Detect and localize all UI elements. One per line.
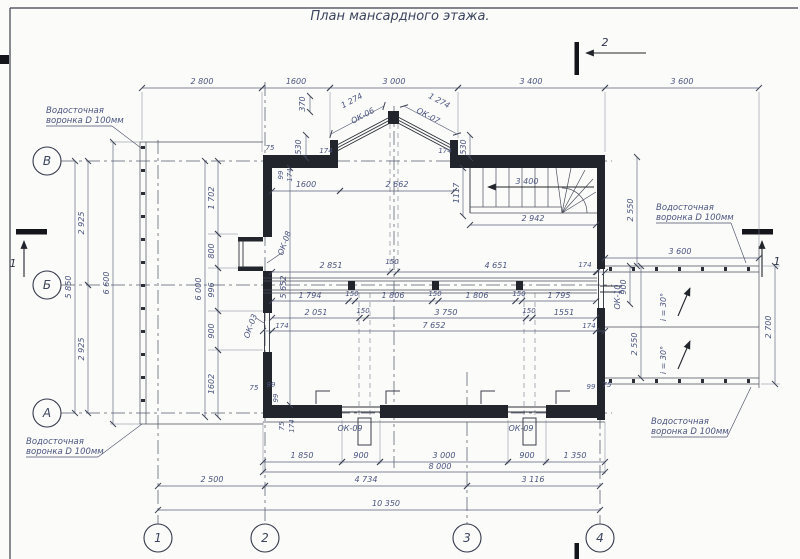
right-roof (605, 246, 759, 388)
col-bubble-1: 1 (154, 531, 162, 545)
dim-1602: 1602 (207, 374, 216, 394)
dim-99-bl-a: 99 (267, 381, 276, 389)
dim-174-b4r: 174 (582, 322, 595, 330)
window-label-ok06: ОК-06 (350, 106, 376, 126)
dim-800: 800 (207, 243, 216, 258)
drawing-sheet: План мансардного этажа. 2 1 1 (0, 0, 800, 559)
slope-label-upper: i = 30° (659, 293, 668, 321)
dim-3000-bot: 3 000 (433, 451, 456, 460)
row-bubble-b: Б (43, 278, 51, 292)
col-bubble-3: 3 (463, 531, 471, 545)
building-walls (263, 111, 605, 420)
col-bubble-2: 2 (261, 531, 269, 545)
dim-530-left: 530 (294, 139, 303, 154)
dim-150-b: 150 (345, 290, 359, 298)
dim-top-3: 3 400 (520, 77, 543, 86)
dim-370: 370 (298, 96, 307, 111)
dim-4734: 4 734 (355, 475, 378, 484)
slope-label-lower: i = 30° (659, 346, 668, 374)
post (348, 281, 355, 290)
funnel-text-1: Водосточная (656, 203, 714, 213)
dim-2700: 2 700 (764, 316, 773, 339)
dim-2051: 2 051 (305, 308, 328, 317)
dim-75-bl: 75 (250, 384, 259, 392)
dim-3400: 3 400 (516, 177, 539, 186)
hidden-lines (359, 124, 535, 418)
dim-2925-a: 2 925 (77, 212, 86, 235)
dim-3750: 3 750 (435, 308, 458, 317)
funnel-text-1: Водосточная (651, 417, 709, 427)
slope-arrow-lower (678, 341, 690, 369)
floor-plan-svg: План мансардного этажа. 2 1 1 (0, 0, 800, 559)
dim-2500: 2 500 (201, 475, 224, 484)
dim-3116: 3 116 (522, 475, 545, 484)
dim-900-left: 900 (207, 323, 216, 338)
dim-2851: 2 851 (320, 261, 343, 270)
dim-150-e: 150 (356, 307, 370, 315)
section-2-label: 2 (602, 36, 609, 49)
slope-labels: i = 30° i = 30° (659, 293, 668, 374)
dim-top-2: 3 000 (383, 77, 406, 86)
section-mark-2-bottom (575, 543, 580, 559)
dimension-lines (72, 85, 778, 513)
dim-1795: 1 795 (548, 291, 571, 300)
funnel-text-2: воронка D 100мм (46, 116, 124, 126)
dim-900-bot-b: 900 (519, 451, 534, 460)
dim-99-tl: 99 (277, 170, 285, 179)
window-label-ok09-left: ОК-09 (337, 424, 362, 433)
fold-mark (0, 55, 9, 64)
section-1-label: 1 (10, 257, 17, 270)
dim-2550-top: 2 550 (626, 199, 635, 222)
dim-900-bot-a: 900 (353, 451, 368, 460)
window-label-ok03: ОК-03 (242, 313, 259, 340)
dim-1702: 1 702 (207, 187, 216, 210)
section-mark-1-left: 1 (10, 229, 48, 277)
window-label-ok07: ОК-07 (415, 106, 442, 126)
dim-150-a: 150 (385, 258, 399, 266)
funnel-text-2: воронка D 100мм (26, 447, 104, 457)
dim-2662: 2 662 (386, 180, 409, 189)
funnel-text-2: воронка D 100мм (656, 213, 734, 223)
dim-174-left: 174 (319, 147, 332, 155)
dim-99-br: 99 (587, 383, 596, 391)
dim-150-c: 150 (428, 290, 442, 298)
grid-bubbles: В Б А 1 2 3 4 (33, 147, 614, 552)
dim-1600-inner: 1600 (296, 180, 316, 189)
bay-window-ok08 (238, 237, 263, 271)
dim-150-d: 150 (512, 290, 526, 298)
funnel-text-2: воронка D 100мм (651, 427, 729, 437)
dim-4651: 4 651 (485, 261, 508, 270)
sheet-frame (0, 8, 798, 559)
window-label-ok08: ОК-08 (276, 230, 293, 257)
dim-2942: 2 942 (522, 214, 545, 223)
post (432, 281, 439, 290)
drawing-title: План мансардного этажа. (310, 9, 489, 24)
dim-2925-b: 2 925 (77, 338, 86, 361)
dim-174-band1: 174 (578, 261, 591, 269)
dim-174-tl: 174 (286, 168, 294, 181)
dim-1794: 1 794 (299, 291, 322, 300)
dim-2550-bottom: 2 550 (630, 333, 639, 356)
dim-996: 996 (207, 282, 216, 297)
dim-top-0: 2 800 (191, 77, 214, 86)
funnel-callout-bottom-left: Водосточная воронка D 100мм (26, 424, 142, 457)
dim-1551: 1551 (554, 308, 574, 317)
window-label-ok09-right: ОК-09 (508, 424, 533, 433)
dim-1350: 1 350 (564, 451, 587, 460)
dim-75-tl: 75 (266, 144, 275, 152)
row-bubble-v: В (43, 154, 51, 168)
dim-150-f: 150 (522, 307, 536, 315)
funnel-text-1: Водосточная (46, 106, 104, 116)
dim-1117: 1117 (452, 182, 461, 203)
dim-6600: 6 600 (102, 272, 111, 295)
col-bubble-4: 4 (596, 531, 604, 545)
dim-1806-a: 1 806 (382, 291, 405, 300)
dim-530-right: 530 (459, 139, 468, 154)
dim-1274-left: 1 274 (340, 91, 364, 110)
funnel-callout-bottom-right: Водосточная воронка D 100мм (651, 387, 751, 437)
dim-174-b4l: 174 (275, 322, 288, 330)
dim-8000: 8 000 (429, 462, 452, 471)
funnel-callout-top-left: Водосточная воронка D 100мм (46, 106, 141, 148)
dim-top-4: 3 600 (671, 77, 694, 86)
dim-6000: 6 000 (194, 278, 203, 301)
dim-1806-b: 1 806 (466, 291, 489, 300)
dim-top-1: 1600 (286, 77, 306, 86)
window-labels: ОК-08 ОК-03 ОК-10 ОК-09 ОК-09 (242, 230, 622, 433)
dim-5850: 5 850 (64, 276, 73, 299)
dim-75-br: 75 (603, 381, 612, 389)
dim-174-bl: 174 (288, 419, 296, 432)
section-mark-2-top: 2 (575, 36, 647, 75)
dim-10350: 10 350 (372, 499, 400, 508)
dim-1850: 1 850 (291, 451, 314, 460)
row-bubble-a: А (42, 406, 51, 420)
slope-arrow-upper (678, 288, 690, 316)
dim-75-bl-b: 75 (278, 421, 286, 430)
window-label-ok10: ОК-10 (613, 284, 622, 309)
post (516, 281, 523, 290)
dim-174-right: 174 (438, 147, 451, 155)
dim-7652: 7 652 (423, 321, 446, 330)
stairs (470, 168, 597, 213)
dim-3600-right: 3 600 (669, 247, 692, 256)
dim-5652: 5 652 (279, 276, 288, 299)
gutter-outlets (316, 391, 570, 404)
funnel-text-1: Водосточная (26, 437, 84, 447)
dim-99-bl-b: 99 (272, 393, 280, 402)
dim-1274-right: 1 274 (427, 91, 451, 110)
